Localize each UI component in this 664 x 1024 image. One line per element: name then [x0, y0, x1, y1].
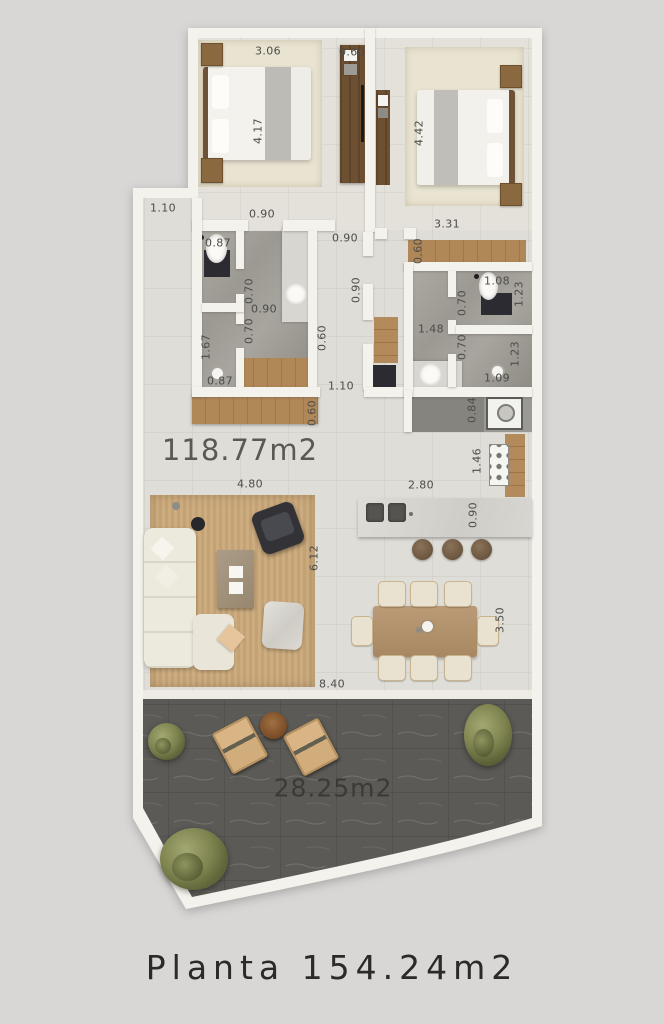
wall-bath1-inner-h	[202, 303, 244, 312]
wall-bath1-inner-a	[236, 231, 244, 269]
floorplan-page: 3.06 0.60 4.17 4.42 1.10 0.90 0.90 3.31 …	[0, 0, 664, 1024]
terrace-area-label: 28.25m2	[274, 774, 393, 803]
dim-sideboard-depth: 0.60	[306, 400, 319, 426]
bar-stool	[471, 539, 492, 560]
bathroom1-vanity	[282, 227, 308, 322]
island-sink-right	[388, 503, 406, 522]
wall-hall-west-c	[363, 344, 373, 390]
dim-bath2-center-width: 1.48	[418, 323, 444, 336]
bar-stool	[412, 539, 433, 560]
wall-bath1-top-right	[283, 220, 335, 231]
bedroom1-nightstand-top	[201, 43, 223, 66]
dim-hall-width: 0.90	[350, 277, 363, 303]
bathroom1-wood-floor	[240, 358, 308, 387]
wall-bath2-west	[404, 262, 413, 397]
dining-chair	[378, 655, 406, 681]
dining-chair	[410, 581, 438, 607]
wall-hall-west-a	[363, 232, 373, 256]
dim-entry-passage: 1.10	[328, 380, 354, 393]
wall-hall-west-b	[363, 284, 373, 320]
floor-lamp	[172, 502, 180, 510]
dim-bath2-inner-door-bot: 0.70	[456, 334, 469, 360]
dim-kitchen-counter: 1.46	[471, 448, 484, 474]
bedroom2-nightstand-top	[500, 65, 522, 88]
bedroom1-tv	[361, 85, 364, 142]
hall-closet	[408, 240, 526, 263]
side-table	[191, 517, 205, 531]
dim-bath2-shower-width: 1.09	[484, 372, 510, 385]
dim-living-width: 4.80	[237, 478, 263, 491]
dining-chair	[351, 616, 373, 646]
dim-bath1-wc-width: 0.87	[205, 237, 231, 250]
dim-laundry-depth: 0.84	[466, 397, 479, 423]
stove	[489, 444, 509, 486]
coffee-table	[217, 550, 254, 608]
living-sideboard	[192, 395, 318, 424]
dim-bath1-shower-width: 0.87	[207, 375, 233, 388]
dim-bedroom2-width: 3.31	[434, 218, 460, 231]
island-sink-left	[366, 503, 384, 522]
dining-chair	[410, 655, 438, 681]
wall-bath2-inner-h	[456, 325, 532, 334]
dim-island-length: 2.80	[408, 479, 434, 492]
wall-laundry-west	[404, 390, 412, 432]
dim-island-depth: 0.90	[467, 502, 480, 528]
dim-hall-closet-depth: 0.60	[316, 325, 329, 351]
terrace-threshold	[143, 690, 532, 699]
bedroom2-bed	[417, 90, 515, 185]
bedroom2-media-unit	[376, 90, 390, 185]
dining-chair	[444, 655, 472, 681]
wall-bath1-inner-c	[236, 348, 244, 387]
dim-bath1-shower-length: 1.67	[200, 334, 213, 360]
dim-living-length: 6.12	[308, 545, 321, 571]
wall-bedroom-divider	[365, 28, 375, 232]
washing-machine	[486, 397, 523, 430]
dim-bath1-inner-door-top: 0.70	[243, 278, 256, 304]
terrace-plant	[160, 828, 228, 890]
dim-left-recess: 1.10	[150, 202, 176, 215]
dim-bath2-shower-length: 1.23	[509, 341, 522, 367]
dim-bath2-wc-width: 1.08	[484, 275, 510, 288]
wall-bath1-west	[192, 198, 202, 397]
dim-bedroom2-length: 4.42	[413, 120, 426, 146]
plan-caption: Planta 154.24m2	[0, 948, 664, 987]
bedroom2-nightstand-bottom	[500, 183, 522, 206]
dining-table-decor	[422, 621, 433, 632]
dim-bath2-wc-length: 1.23	[513, 281, 526, 307]
entry-cabinet	[374, 317, 398, 363]
terrace-plant	[464, 704, 512, 766]
entry-doormat	[373, 365, 396, 388]
bathroom2-sink	[419, 363, 442, 386]
bathroom1-sink	[285, 283, 307, 305]
wall-bottom-right	[364, 387, 532, 397]
floorplan-base	[0, 0, 664, 1024]
dim-bedroom2-wardrobe: 0.60	[412, 238, 425, 264]
dim-bath1-inner-door-bot: 0.70	[243, 318, 256, 344]
interior-area-label: 118.77m2	[162, 433, 318, 467]
bedroom1-nightstand-bottom	[201, 158, 223, 183]
wall-bottom-left	[192, 387, 320, 397]
dining-chair	[378, 581, 406, 607]
terrace-plant	[148, 723, 185, 760]
dim-hall-door: 0.90	[332, 232, 358, 245]
dim-dining-length: 3.50	[494, 607, 507, 633]
dim-bedroom1-width: 3.06	[255, 45, 281, 58]
wall-bath2-inner-b	[448, 320, 456, 334]
terrace-table	[260, 712, 287, 739]
dining-table-decor-small	[416, 627, 422, 633]
dim-bedroom1-length: 4.17	[252, 118, 265, 144]
dim-total-width: 8.40	[319, 678, 345, 691]
sofa	[144, 528, 196, 668]
wall-bedroom2-bottom-a	[375, 228, 387, 239]
bar-stool	[442, 539, 463, 560]
dining-chair	[444, 581, 472, 607]
dim-bath1-door: 0.90	[249, 208, 275, 221]
dim-bedroom1-wardrobe: 0.60	[339, 46, 365, 59]
dim-bath1-center-width: 0.90	[251, 303, 277, 316]
bedroom1-bed	[203, 67, 311, 160]
bathroom2-flush-button	[474, 274, 479, 279]
dim-bath2-inner-door-top: 0.70	[456, 290, 469, 316]
kitchen-island	[358, 498, 532, 537]
island-faucet	[409, 512, 413, 516]
lounge-chair	[261, 601, 304, 651]
wall-bath1-east	[308, 231, 317, 391]
